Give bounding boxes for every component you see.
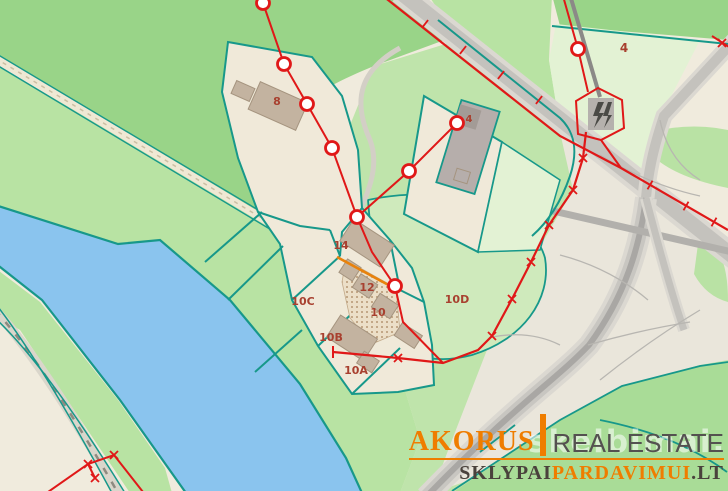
agency-logo-line1: AKORUS REAL ESTATE <box>409 414 724 460</box>
parcel-label-4: 4 <box>620 41 628 55</box>
parcel-label-4: 4 <box>466 114 473 125</box>
parcel-label-10D: 10D <box>445 293 469 306</box>
agency-logo-tagline: SKLYPAIPARDAVIMUI.LT <box>409 463 724 483</box>
brand-suffix: REAL ESTATE <box>553 430 724 456</box>
parcel-label-8: 8 <box>273 95 281 108</box>
agency-logo: AKORUS REAL ESTATE SKLYPAIPARDAVIMUI.LT <box>409 414 724 483</box>
tagline-part2: PARDAVIMUI <box>552 462 691 484</box>
parcel-label-10: 10 <box>370 306 386 319</box>
parcel-label-10C: 10C <box>291 295 314 308</box>
tagline-part3: .LT <box>691 462 724 484</box>
parcel-label-12: 12 <box>359 281 374 294</box>
power-pylon-icon <box>588 98 614 130</box>
brand-name: AKORUS <box>409 428 535 456</box>
map-screenshot: 84414121010C10B10A10D skelbimai.lt AKORU… <box>0 0 728 491</box>
parcel-label-10B: 10B <box>319 331 343 344</box>
logo-divider-bar <box>540 414 546 456</box>
tagline-part1: SKLYPAI <box>459 462 552 484</box>
parcel-label-10A: 10A <box>344 364 368 377</box>
parcel-label-14: 14 <box>333 239 349 252</box>
